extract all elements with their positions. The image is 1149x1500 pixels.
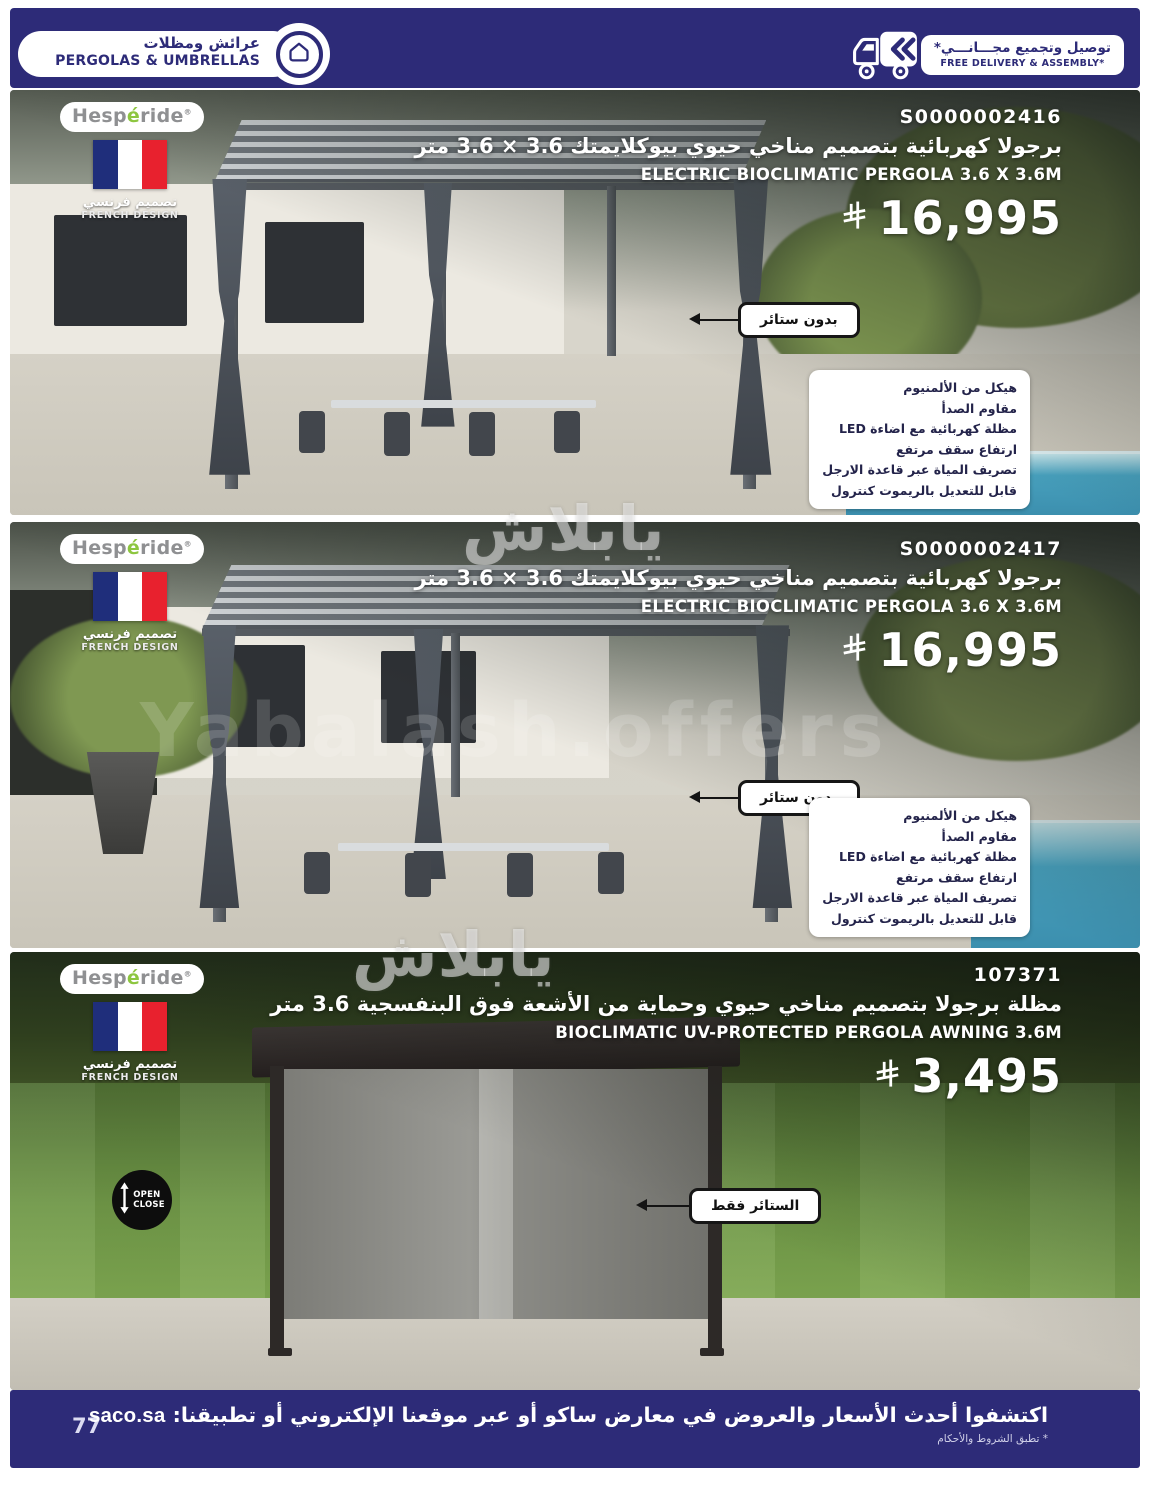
brand-logo: Hespéride® [60,102,204,132]
price-value: 16,995 [878,627,1062,673]
product-info: S0000002416 برجولا كهربائية بتصميم مناخي… [414,106,1062,241]
badge-ring [276,31,323,78]
french-design-english: FRENCH DESIGN [60,642,200,653]
product-title-arabic: برجولا كهربائية بتصميم مناخي حيوي بيوكلا… [414,566,1062,590]
section-title-english: PERGOLAS & UMBRELLAS [55,53,260,69]
section-title-arabic: عرائش ومظلات [55,34,260,52]
delivery-text-pill: توصيل وتجميع مجـــانـــي* FREE DELIVERY … [921,35,1124,75]
up-down-arrow-icon [119,1182,130,1218]
product-sku: 107371 [270,964,1062,986]
house-icon [286,39,312,69]
open-close-label: OPENCLOSE [133,1190,165,1210]
features-box: هيكل من الألمنيوم مقاوم الصدأ مظلة كهربا… [809,798,1030,937]
callout-label: بدون ستائر [738,302,860,338]
french-design-english: FRENCH DESIGN [60,210,200,221]
footer-message: اكتشفوا أحدث الأسعار والعروض في معارض سا… [89,1403,1048,1428]
product-price: 16,995 [414,627,1062,673]
feature-item: مقاوم الصدأ [822,399,1017,420]
feature-item: هيكل من الألمنيوم [822,806,1017,827]
price-value: 16,995 [878,195,1062,241]
pergola-section-badge [268,23,330,85]
feature-item: قابل للتعديل بالريموت كنترول [822,481,1017,502]
no-curtains-callout: بدون ستائر [700,302,860,338]
footer-bar: 77 اكتشفوا أحدث الأسعار والعروض في معارض… [10,1390,1140,1468]
product-title-english: BIOCLIMATIC UV-PROTECTED PERGOLA AWNING … [270,1023,1062,1042]
product-card-2: Hespéride® تصميم فرنسي FRENCH DESIGN S00… [10,522,1140,948]
product-price: 16,995 [414,195,1062,241]
feature-item: مظلة كهربائية مع اضاءة LED [822,847,1017,868]
french-flag-icon [93,1002,167,1051]
product-info: S0000002417 برجولا كهربائية بتصميم مناخي… [414,538,1062,673]
footer-text-block: اكتشفوا أحدث الأسعار والعروض في معارض سا… [89,1403,1048,1445]
saudi-riyal-icon [840,200,868,236]
feature-item: ارتفاع سقف مرتفع [822,440,1017,461]
french-design-english: FRENCH DESIGN [60,1072,200,1083]
product-title-english: ELECTRIC BIOCLIMATIC PERGOLA 3.6 X 3.6M [414,597,1062,616]
features-box: هيكل من الألمنيوم مقاوم الصدأ مظلة كهربا… [809,370,1030,509]
brand-logo: Hespéride® [60,964,204,994]
product-sku: S0000002417 [414,538,1062,560]
french-flag-icon [93,572,167,621]
delivery-text-arabic: توصيل وتجميع مجـــانـــي* [934,40,1111,56]
feature-item: ارتفاع سقف مرتفع [822,868,1017,889]
callout-arrow [700,797,738,799]
callout-arrow [700,319,738,321]
brand-block: Hespéride® تصميم فرنسي FRENCH DESIGN [60,102,200,221]
feature-item: مقاوم الصدأ [822,827,1017,848]
feature-item: تصريف المياة عبر قاعدة الارجل [822,888,1017,909]
section-title-pill: عرائش ومظلات PERGOLAS & UMBRELLAS [18,31,318,77]
feature-item: تصريف المياة عبر قاعدة الارجل [822,460,1017,481]
brand-block: Hespéride® تصميم فرنسي FRENCH DESIGN [60,964,200,1083]
brand-name: Hespéride® [72,105,192,127]
footer-message-text: اكتشفوا أحدث الأسعار والعروض في معارض سا… [173,1403,1048,1427]
product-title-arabic: مظلة برجولا بتصميم مناخي حيوي وحماية من … [270,992,1062,1016]
saudi-riyal-icon [840,632,868,668]
brand-block: Hespéride® تصميم فرنسي FRENCH DESIGN [60,534,200,653]
french-design-arabic: تصميم فرنسي [60,1057,200,1072]
brand-logo: Hespéride® [60,534,204,564]
delivery-text-english: FREE DELIVERY & ASSEMBLY* [934,58,1111,69]
delivery-truck-icon [847,24,925,86]
saco-website-link[interactable]: saco.sa [89,1404,166,1427]
product-info: 107371 مظلة برجولا بتصميم مناخي حيوي وحم… [270,964,1062,1099]
product-card-1: Hespéride® تصميم فرنسي FRENCH DESIGN S00… [10,90,1140,515]
curtains-only-callout: الستائر فقط [647,1188,821,1224]
feature-item: هيكل من الألمنيوم [822,378,1017,399]
open-close-badge: OPENCLOSE [112,1170,172,1230]
terms-note: * تطبق الشروط والأحكام [89,1433,1048,1445]
feature-item: مظلة كهربائية مع اضاءة LED [822,419,1017,440]
brand-name: Hespéride® [72,537,192,559]
product-card-3: Hespéride® تصميم فرنسي FRENCH DESIGN 107… [10,952,1140,1390]
section-title: عرائش ومظلات PERGOLAS & UMBRELLAS [55,34,260,69]
french-flag-icon [93,140,167,189]
product-sku: S0000002416 [414,106,1062,128]
price-value: 3,495 [911,1053,1062,1099]
catalog-page: عرائش ومظلات PERGOLAS & UMBRELLAS [0,0,1149,1500]
header-bar: عرائش ومظلات PERGOLAS & UMBRELLAS [10,8,1140,88]
callout-label: الستائر فقط [689,1188,821,1224]
feature-item: قابل للتعديل بالريموت كنترول [822,909,1017,930]
product-price: 3,495 [270,1053,1062,1099]
french-design-arabic: تصميم فرنسي [60,195,200,210]
brand-name: Hespéride® [72,967,192,989]
product-title-english: ELECTRIC BIOCLIMATIC PERGOLA 3.6 X 3.6M [414,165,1062,184]
product-title-arabic: برجولا كهربائية بتصميم مناخي حيوي بيوكلا… [414,134,1062,158]
saudi-riyal-icon [873,1058,901,1094]
french-design-arabic: تصميم فرنسي [60,627,200,642]
free-delivery-badge: توصيل وتجميع مجـــانـــي* FREE DELIVERY … [847,24,1124,86]
callout-arrow [647,1205,689,1207]
